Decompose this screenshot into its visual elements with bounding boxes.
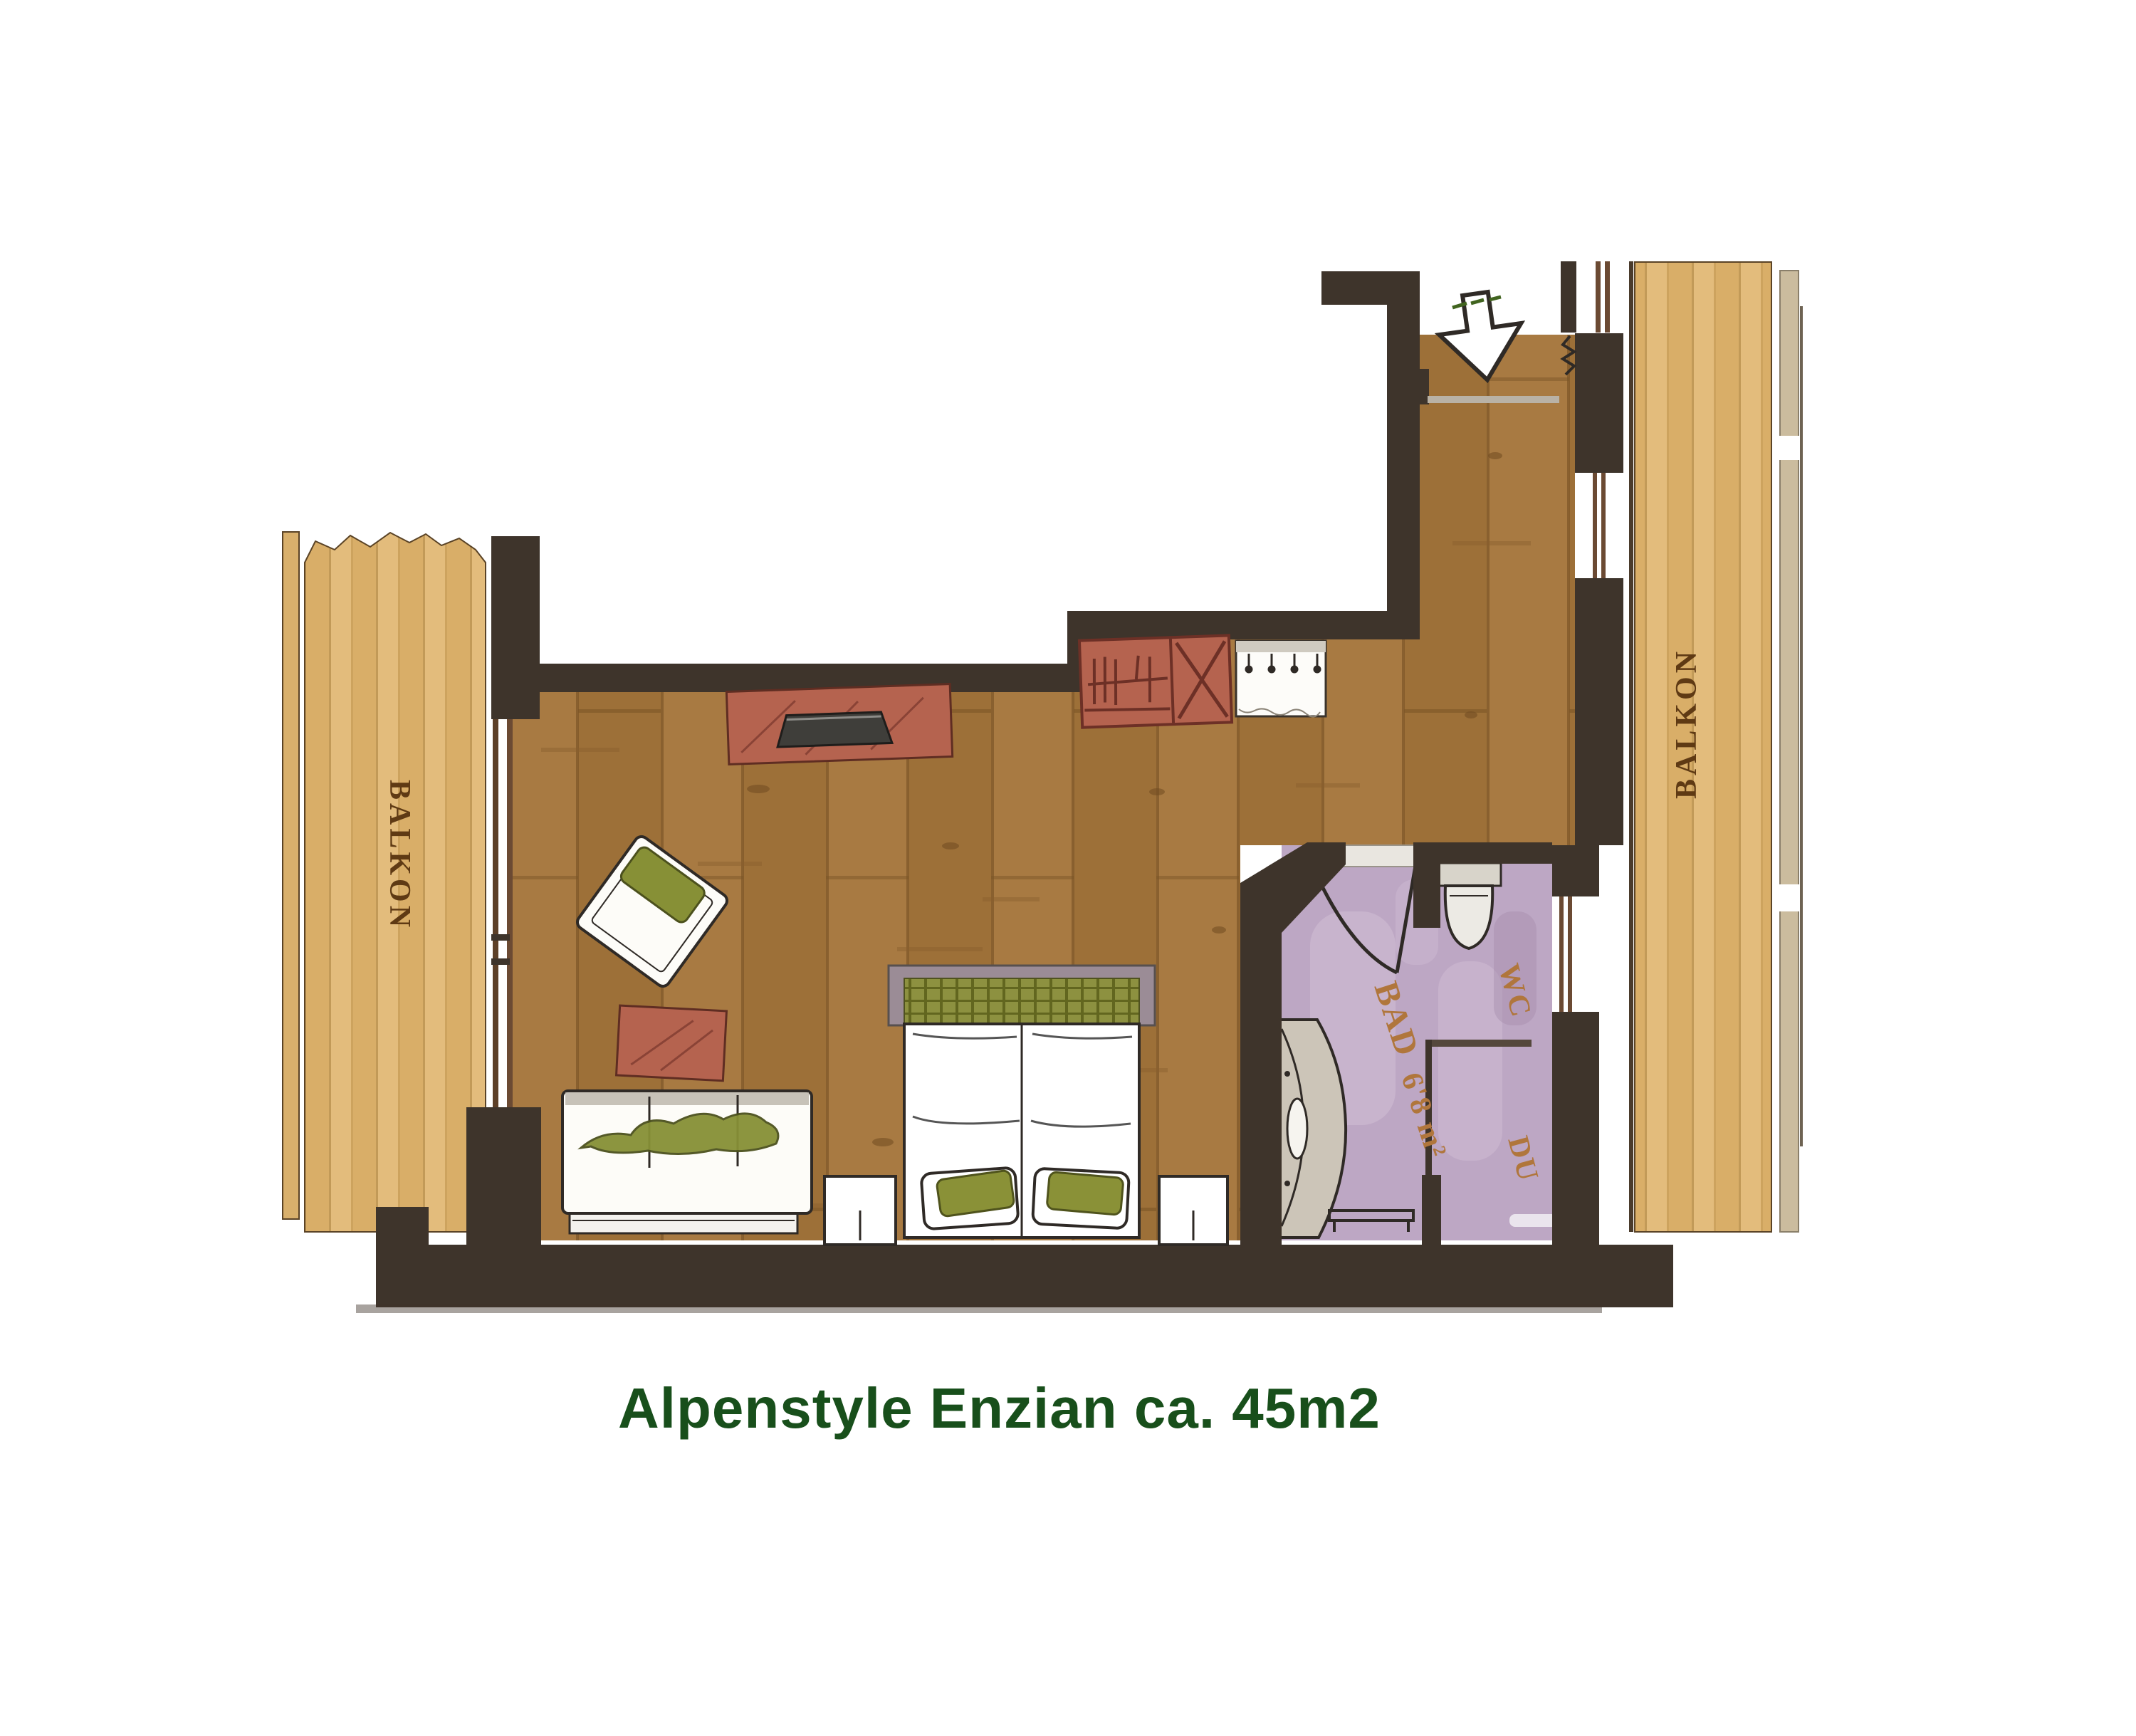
faucet-dot-3 [1284, 1071, 1290, 1077]
wardrobe [1079, 635, 1232, 727]
toilet-tank [1437, 863, 1501, 886]
wall-bath-right-upper [1552, 845, 1599, 896]
window-frame-line-inner [507, 713, 513, 1107]
bed-headboard-plaid [904, 978, 1139, 1024]
wc-du-divider [1432, 1040, 1532, 1047]
entry-frame-line-1 [1596, 261, 1601, 333]
wall-bottom-left-stub [376, 1207, 429, 1307]
wall-corridor-pillar-upper [1575, 333, 1623, 473]
sofa [562, 1091, 812, 1233]
wall-bottom-shadow [356, 1304, 1602, 1313]
balcony-left-outer-strip [283, 532, 299, 1219]
wall-bottom [376, 1245, 1673, 1307]
wall-top-left [491, 664, 1072, 692]
plan-title: Alpenstyle Enzian ca. 45m2 [618, 1376, 1381, 1440]
entry-door-jamb-right [1561, 261, 1576, 333]
balcony-right-railing [1777, 271, 1803, 1232]
entry-door-jamb-left [1419, 369, 1429, 404]
corridor-window-line-2 [1601, 473, 1606, 578]
balcony-right: BALKON [1629, 261, 1803, 1232]
window-frame-line-outer [493, 713, 498, 1107]
partition-lower-stub [1422, 1175, 1441, 1245]
sofa-back-shading [565, 1092, 809, 1105]
faucet-dot-4 [1284, 1181, 1290, 1186]
wall-bath-left [1240, 926, 1282, 1245]
balcony-right-edge-line [1629, 261, 1633, 1232]
left-window [491, 713, 513, 1107]
sink [1287, 1099, 1307, 1159]
window-tick-1 [491, 934, 510, 941]
entry-threshold-line [1428, 396, 1559, 403]
partition-upper-stub [1413, 842, 1440, 928]
floorplan-page: BAD 6'8 m² WC DU BALKON BALKON [0, 0, 2136, 1736]
entry-frame-line-2 [1605, 261, 1610, 333]
wall-top-right [1072, 611, 1420, 639]
side-table [617, 1005, 727, 1081]
wall-window-pier [466, 1107, 541, 1245]
bench-top-shading [1236, 641, 1326, 652]
corridor-window-line-1 [1593, 473, 1597, 578]
wall-entry-left [1387, 299, 1420, 639]
tv-sideboard [726, 684, 952, 765]
wall-bath-right-lower [1552, 1012, 1599, 1245]
luggage-bench [1236, 641, 1326, 717]
wall-corridor-pillar-lower [1575, 578, 1623, 845]
bath-window-line-2 [1568, 896, 1572, 1012]
wall-bath-top-thin [1438, 842, 1552, 864]
bed-pillow-green-right [1047, 1172, 1124, 1215]
bath-window-line-1 [1559, 896, 1564, 1012]
balcony-right-deck [1635, 262, 1771, 1232]
floorplan-drawing: BAD 6'8 m² WC DU BALKON BALKON [0, 0, 2136, 1736]
balcony-left: BALKON [283, 532, 486, 1232]
balcony-left-label: BALKON [383, 780, 416, 931]
balcony-right-label: BALKON [1670, 648, 1703, 799]
window-tick-2 [491, 958, 510, 965]
